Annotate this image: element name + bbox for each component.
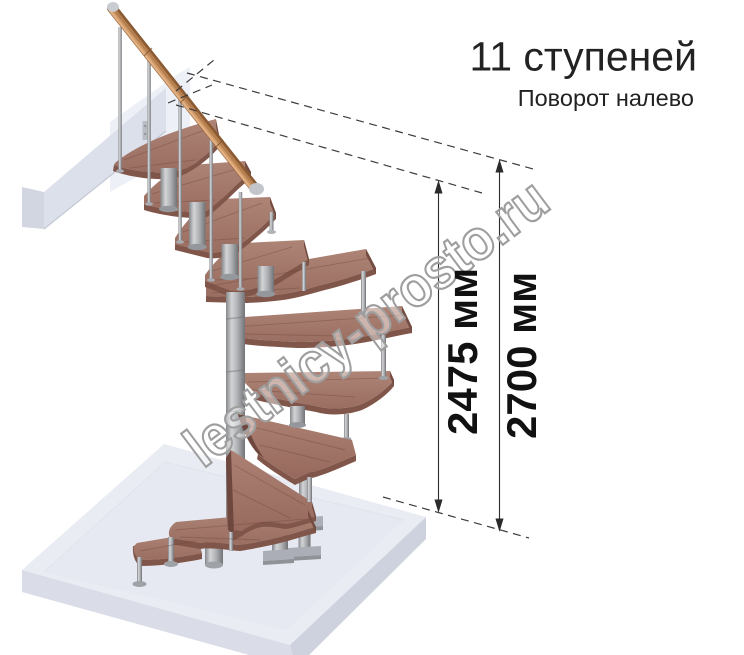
svg-text:Поворот налево: Поворот налево (518, 85, 694, 111)
svg-text:11 ступеней: 11 ступеней (469, 34, 697, 80)
svg-text:2700 мм: 2700 мм (498, 272, 545, 439)
svg-text:2475 мм: 2475 мм (439, 268, 486, 435)
